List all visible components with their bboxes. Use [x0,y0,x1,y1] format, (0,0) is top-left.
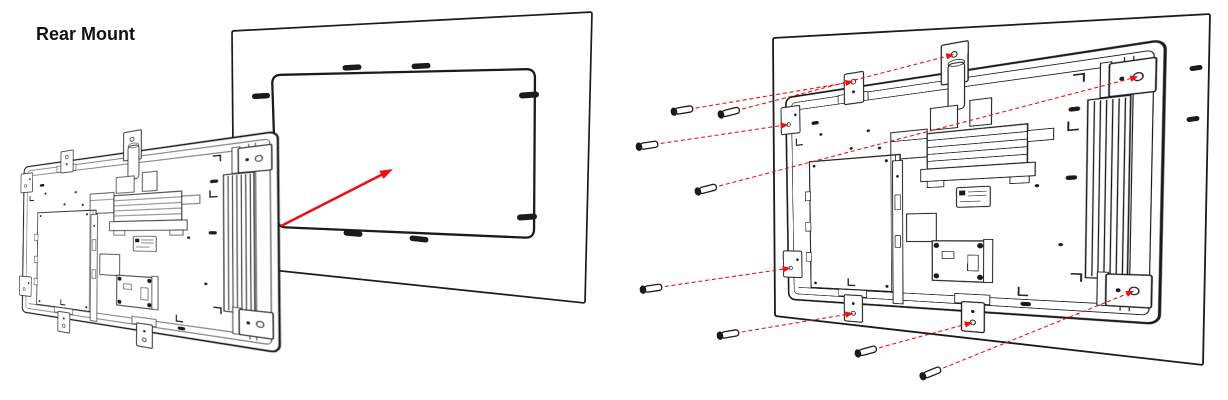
screw-guide-arrowhead [964,321,973,327]
screw-guide-arrowhead [1125,291,1134,297]
screw-guide-arrowhead [845,80,853,86]
screw-guide-line [742,56,947,109]
screw [694,183,717,196]
screw [671,105,694,116]
diagram-canvas: Rear Mount [0,0,1228,400]
screw-guide-line [879,324,966,348]
screw-guide-line [943,294,1127,368]
screw [854,345,877,358]
screw-guide-line [661,126,782,144]
screw [919,366,942,381]
screw-guide-arrowhead [845,311,853,317]
screw-guide-line [742,314,847,332]
insert-direction-arrowhead [379,169,393,179]
screw-guide-arrowhead [782,266,790,272]
annotations-layer [0,0,1228,400]
screw-guide-line [719,78,1131,186]
insert-direction-arrow-line [281,173,385,226]
screw [717,329,740,340]
screw-guide-arrowhead [780,122,788,128]
screw-guide-arrowhead [946,53,955,59]
screw-guide-line [665,269,784,286]
screw [640,283,663,293]
screw-guide-line [696,83,847,108]
screw-guide-arrowhead [1130,76,1139,82]
screw [717,106,740,119]
screw [636,140,659,151]
